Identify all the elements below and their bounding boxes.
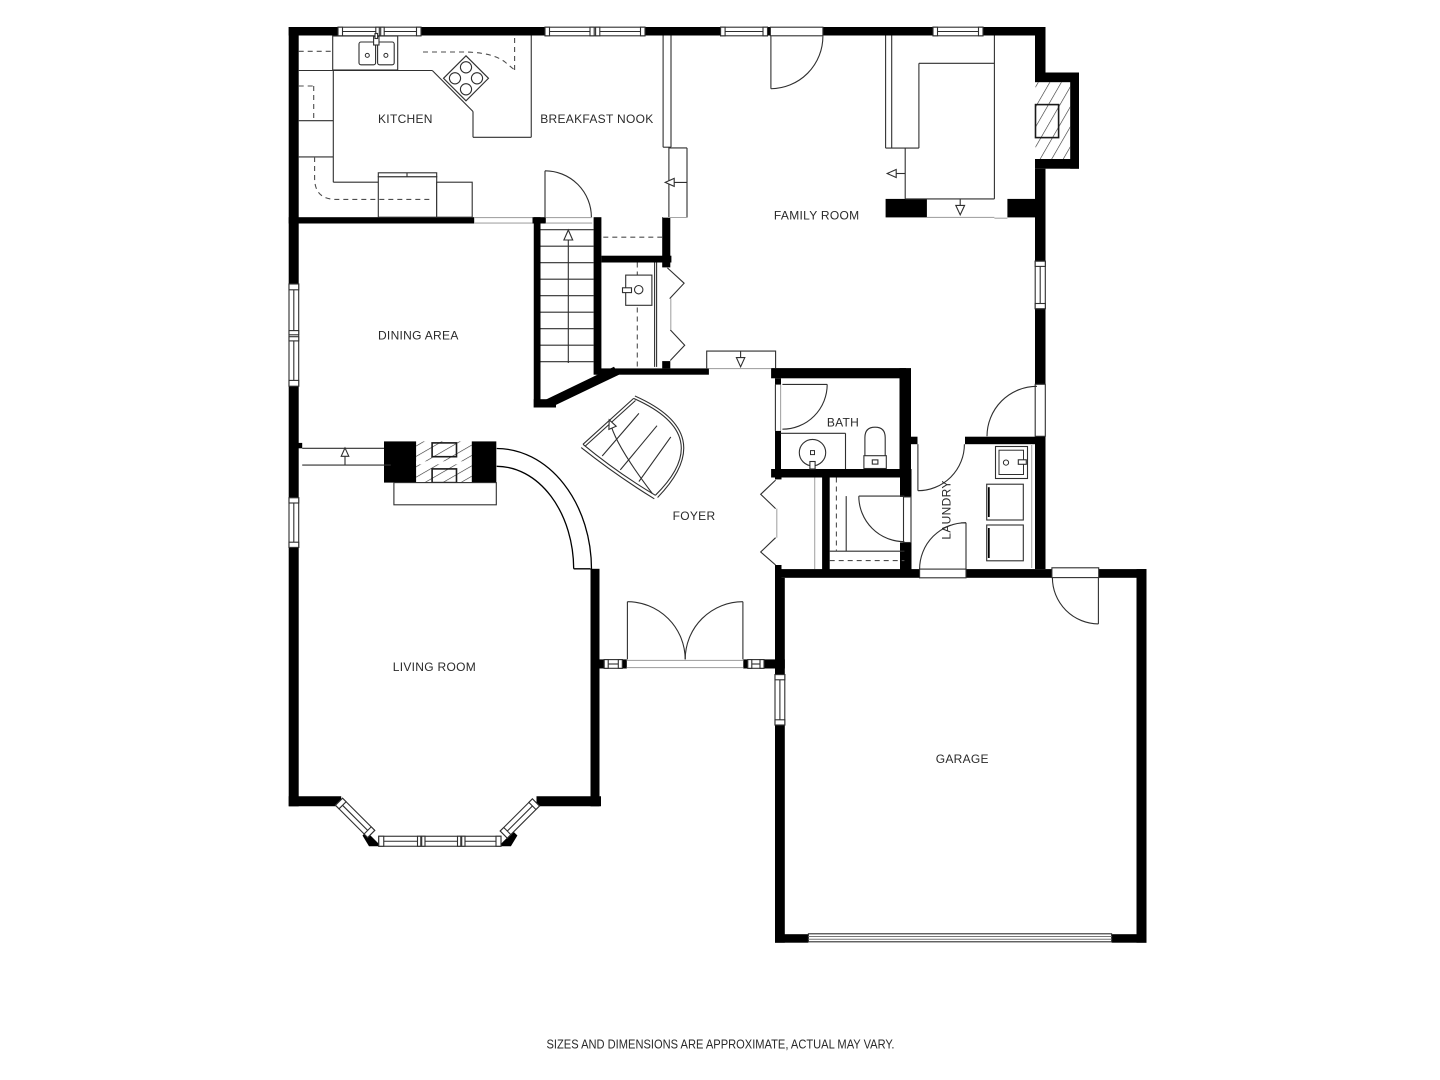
svg-text:FAMILY ROOM: FAMILY ROOM	[774, 209, 860, 223]
svg-text:LIVING ROOM: LIVING ROOM	[393, 660, 476, 674]
svg-text:DINING AREA: DINING AREA	[378, 329, 459, 343]
svg-text:SIZES AND DIMENSIONS ARE APPRO: SIZES AND DIMENSIONS ARE APPROXIMATE, AC…	[547, 1038, 895, 1052]
svg-text:FOYER: FOYER	[673, 509, 716, 523]
svg-text:GARAGE: GARAGE	[936, 752, 989, 766]
svg-text:BREAKFAST NOOK: BREAKFAST NOOK	[540, 112, 653, 126]
svg-text:LAUNDRY: LAUNDRY	[940, 480, 954, 539]
svg-text:BATH: BATH	[827, 416, 859, 430]
svg-text:KITCHEN: KITCHEN	[378, 112, 433, 126]
